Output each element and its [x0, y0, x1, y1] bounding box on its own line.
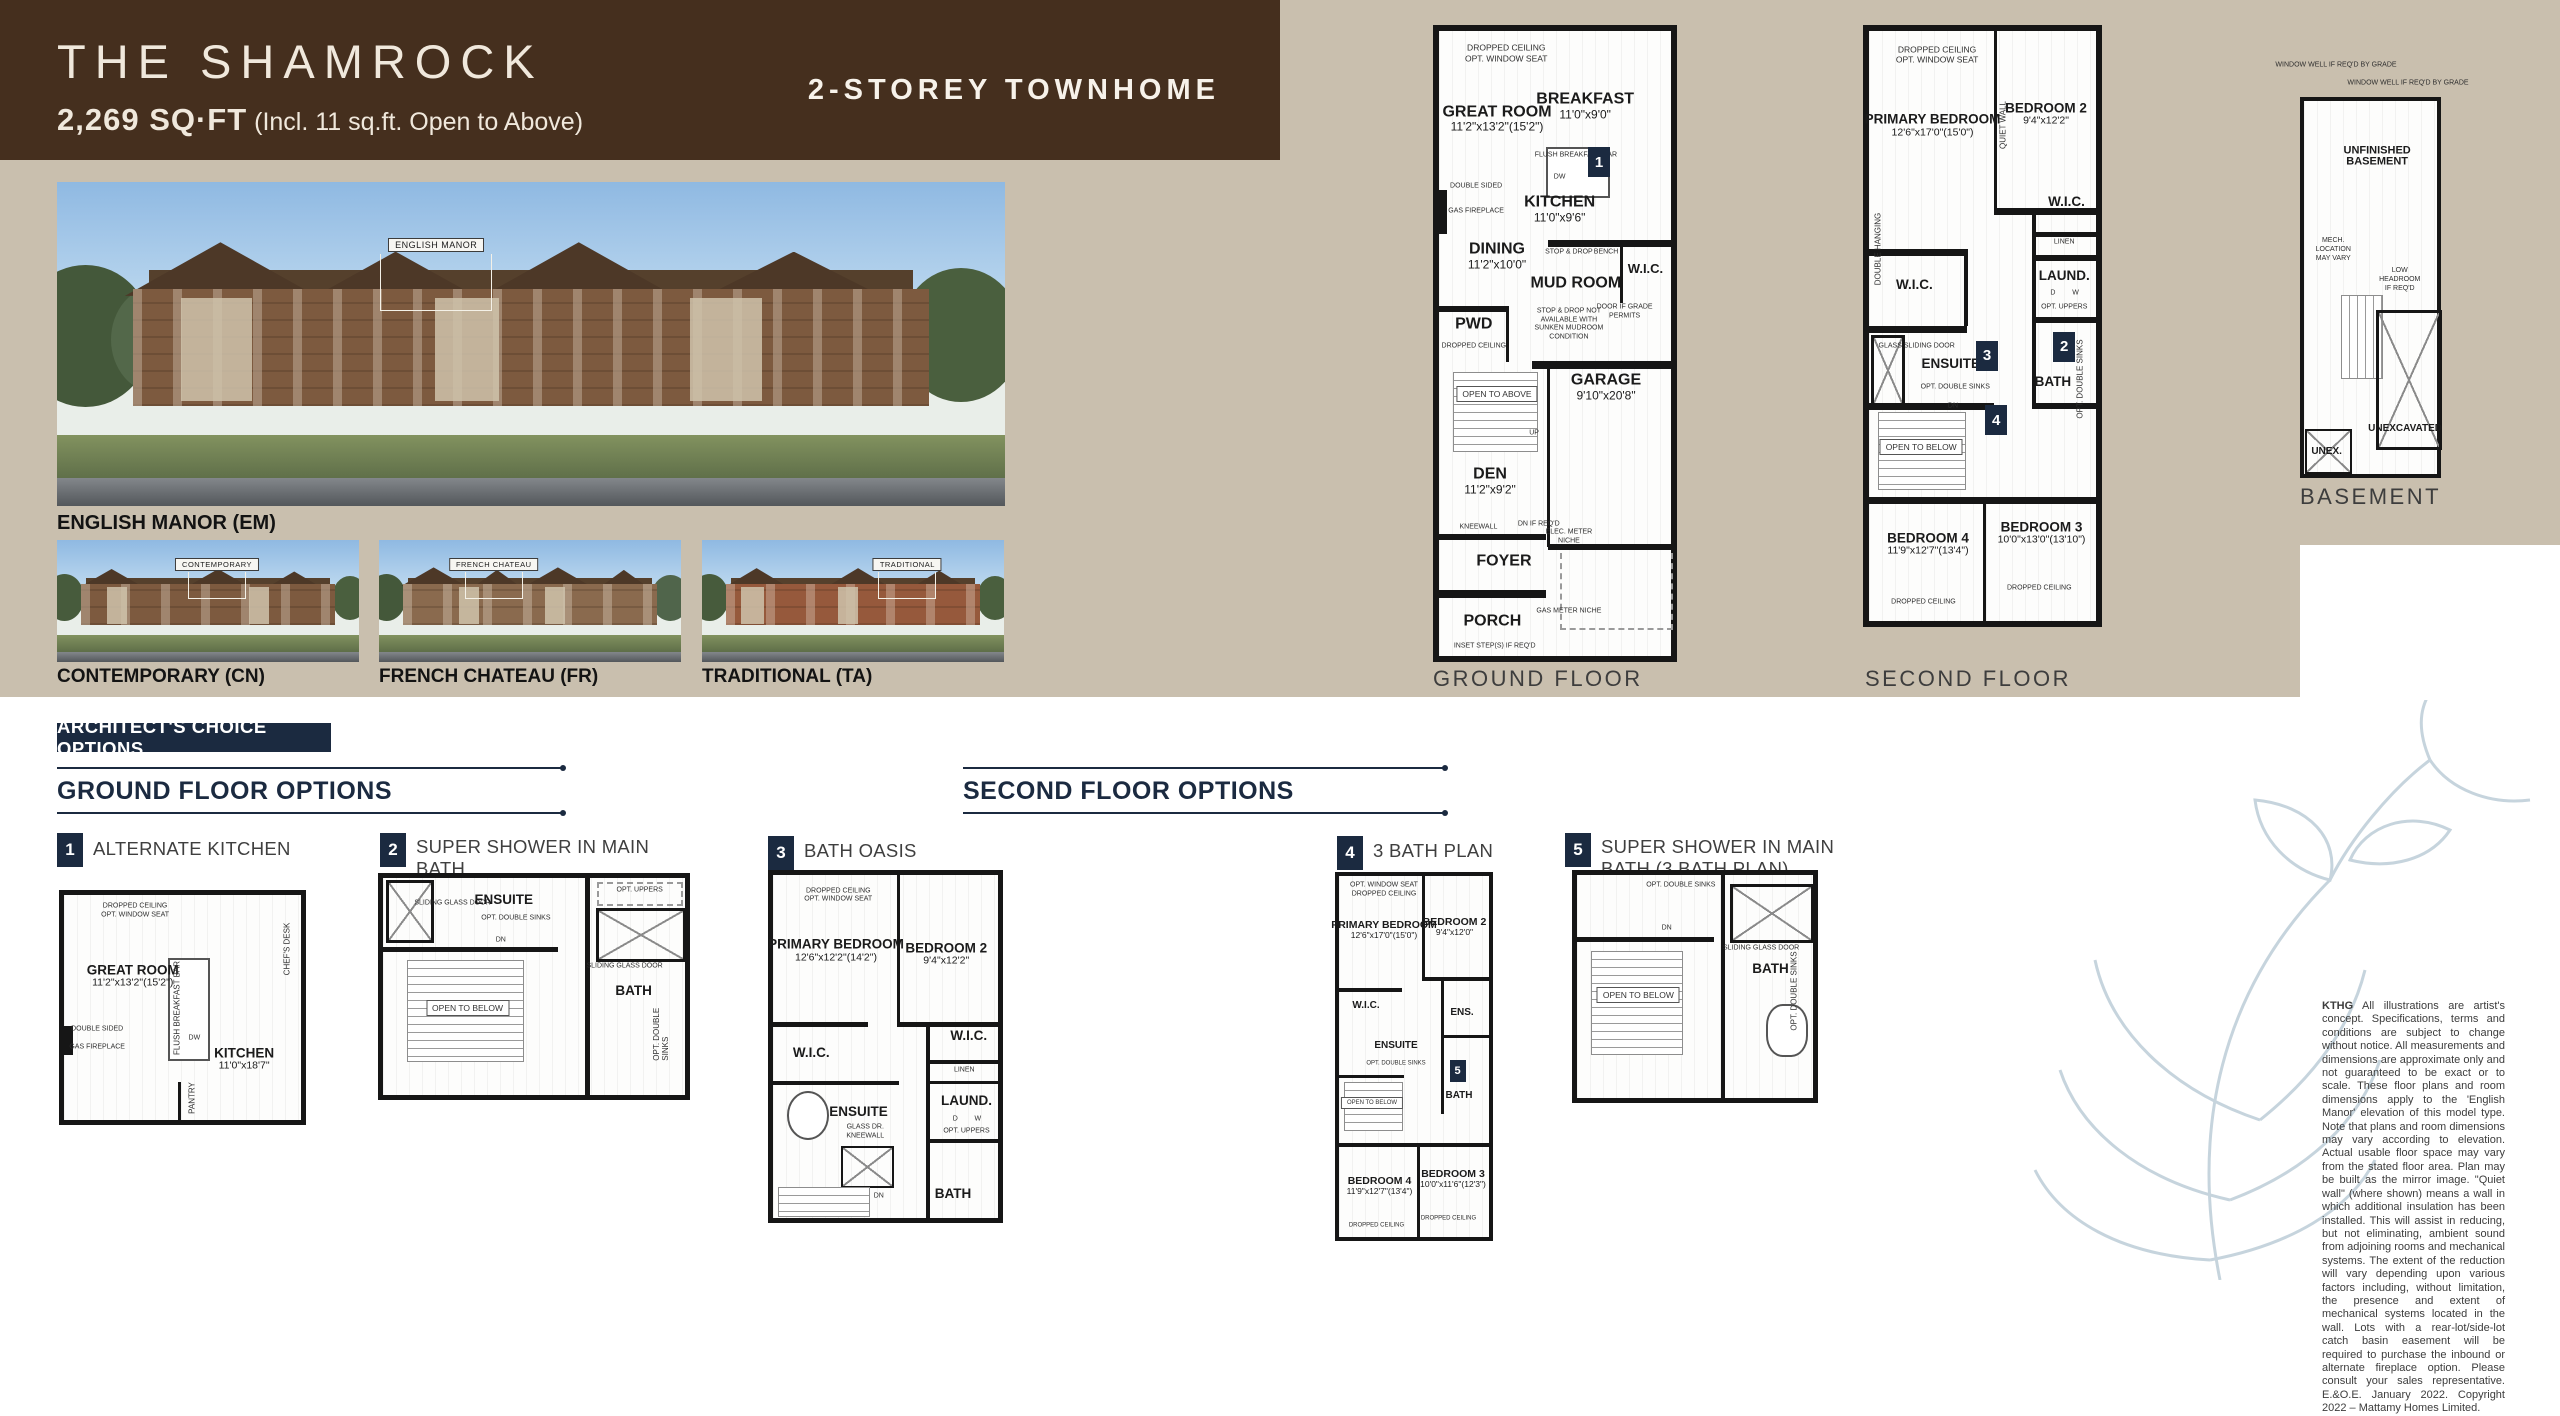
lawn	[57, 435, 1005, 484]
plan-note: GLASS SLIDING DOOR	[1879, 342, 1955, 351]
room-label: BATH	[1752, 962, 1789, 976]
plan-note: LINEN	[2054, 239, 2075, 248]
elevation-photo-contemporary: CONTEMPORARY	[57, 540, 359, 662]
option-marker-5: 5	[1450, 1060, 1466, 1082]
room-label: BATH	[1445, 1091, 1472, 1102]
second-floor-plan: DROPPED CEILINGOPT. WINDOW SEAT PRIMARY …	[1863, 25, 2102, 627]
option-3-plan: DROPPED CEILINGOPT. WINDOW SEAT PRIMARY …	[768, 870, 1003, 1223]
facade	[403, 584, 657, 625]
stone-bay	[249, 587, 269, 623]
room-label: ENS.	[1450, 1008, 1473, 1019]
shower	[596, 908, 687, 962]
ground-floor-caption: GROUND FLOOR	[1433, 666, 1643, 692]
plan-note: LINEN	[954, 1066, 975, 1075]
room-label: BEDROOM 411'9"x12'7"(13'4")	[1887, 532, 1969, 557]
basement-caption: BASEMENT	[2300, 484, 2441, 510]
plan-note: CHEF'S DESK	[282, 923, 291, 976]
elevation-callout: ENGLISH MANOR	[388, 238, 484, 252]
room-label: BREAKFAST11'0"x9'0"	[1536, 91, 1634, 120]
plan-note: DROPPED CEILING	[1349, 1222, 1404, 1230]
room-label: BEDROOM 29'4"x12'2"	[2005, 101, 2087, 126]
room-label: BEDROOM 310'0"x13'0"(13'10")	[1998, 520, 2086, 545]
stone-bay	[435, 298, 499, 401]
plan-note: GAS FIREPLACE	[69, 1044, 125, 1053]
rule	[963, 767, 1445, 769]
room-label: BATH	[615, 984, 652, 998]
plan-note: OPT. DOUBLE SINKS	[1790, 951, 1799, 1030]
plan-note: LOW HEADROOM IF REQ'D	[2378, 267, 2422, 293]
plan-note: DROPPED CEILING	[1891, 599, 1956, 608]
wall-segment	[1577, 937, 1714, 941]
plan-note: FLUSH BREAKFAST BAR	[172, 960, 181, 1054]
wall-segment	[926, 1022, 930, 1218]
room-label: KITCHEN11'0"x9'6"	[1524, 194, 1595, 223]
room-label: UNEXCAVATED	[2368, 424, 2442, 435]
plan-note: D	[2050, 289, 2055, 298]
plan-note: STOP & DROP	[1545, 249, 1593, 258]
tree	[332, 576, 359, 620]
plan-note: DN	[1948, 403, 1958, 412]
wall-segment	[1506, 306, 1509, 362]
room-label: PORCH	[1463, 613, 1521, 630]
wall-segment	[926, 1139, 998, 1142]
basement-plan: UNFINISHED BASEMENT MECH. LOCATION MAY V…	[2300, 97, 2441, 478]
room-label: PRIMARY BEDROOM12'6"x17'0"(15'0")	[1865, 113, 2001, 138]
elevation-callout: CONTEMPORARY	[175, 558, 259, 571]
room-label: W.I.C.	[2048, 195, 2085, 209]
wall-segment	[773, 1022, 868, 1026]
option-1-plan: DROPPED CEILINGOPT. WINDOW SEAT GREAT RO…	[59, 890, 306, 1125]
wall-segment	[2032, 255, 2096, 261]
sqft-line: 2,269 SQ·FT (Incl. 11 sq.ft. Open to Abo…	[57, 102, 583, 138]
wall-segment	[773, 1081, 899, 1085]
room-label: MUD ROOM	[1531, 276, 1622, 293]
option-marker-2: 2	[2053, 332, 2075, 362]
elevation-callout: FRENCH CHATEAU	[449, 558, 539, 571]
tree	[379, 574, 406, 621]
plan-note: OPT. DOUBLE SINKS	[2076, 340, 2085, 419]
room-label: UNFINISHED BASEMENT	[2332, 145, 2422, 168]
header-band: THE SHAMROCK 2,269 SQ·FT (Incl. 11 sq.ft…	[0, 0, 1280, 160]
second-floor-options-header: SECOND FLOOR OPTIONS	[963, 777, 1294, 806]
wall-segment	[1439, 306, 1509, 312]
room-label: DINING11'2"x10'0"	[1468, 241, 1526, 270]
note-line: DROPPED CEILING	[1467, 42, 1545, 52]
open-to-above-label: OPEN TO ABOVE	[1456, 386, 1537, 402]
wall-segment	[383, 947, 558, 951]
page-title: THE SHAMROCK	[57, 34, 544, 89]
plan-note: SLIDING GLASS DOOR	[586, 963, 662, 972]
wall-segment	[2032, 403, 2096, 409]
plan-note: OPT. UPPERS	[617, 887, 663, 896]
stone-bay	[107, 587, 127, 623]
plan-note: WINDOW WELL IF REQ'D BY GRADE	[2275, 62, 2396, 71]
room-label: W.I.C.	[1352, 1001, 1379, 1012]
room-label: BEDROOM 29'4"x12'2"	[905, 941, 987, 966]
room-label: BATH	[935, 1187, 972, 1201]
stone-bay	[741, 587, 764, 623]
plan-note: D	[953, 1116, 958, 1125]
plan-note: DROPPED CEILING	[2007, 584, 2072, 593]
room-label: W.I.C.	[793, 1046, 830, 1060]
tree	[57, 574, 84, 621]
rule	[963, 812, 1445, 814]
option-marker-4: 4	[1985, 405, 2007, 435]
fireplace	[1439, 190, 1447, 234]
shower	[1730, 884, 1814, 944]
sqft-note: (Incl. 11 sq.ft. Open to Above)	[247, 108, 583, 136]
room-label: W.I.C.	[1628, 262, 1663, 276]
option-2-number: 2	[380, 833, 406, 867]
room-label: ENSUITE	[829, 1105, 888, 1119]
plan-note: W	[974, 1116, 981, 1125]
option-2-plan: SLIDING GLASS DOOR ENSUITE OPT. DOUBLE S…	[378, 873, 690, 1100]
wall-segment	[926, 1081, 998, 1084]
plan-note: KNEEWALL	[1460, 524, 1498, 533]
elevation-label-cn: CONTEMPORARY (CN)	[57, 666, 265, 688]
wall-segment	[1721, 875, 1725, 1098]
stairs	[1453, 372, 1539, 452]
wall-segment	[1964, 249, 1967, 326]
callout-bracket	[188, 572, 246, 599]
building	[133, 289, 929, 406]
wall-segment	[1983, 497, 1986, 621]
room-label: PRIMARY BEDROOM12'6"x17'0"(15'0")	[1331, 920, 1437, 940]
wall-segment	[1439, 534, 1546, 540]
plan-note: DOUBLE SIDED	[71, 1026, 123, 1035]
plan-note: W	[2072, 289, 2079, 298]
callout-bracket	[380, 254, 492, 311]
room-label: LAUND.	[941, 1094, 992, 1108]
room-label: W.I.C.	[950, 1029, 987, 1043]
wall-segment	[1417, 1143, 1420, 1237]
home-type-label: 2-STOREY TOWNHOME	[620, 74, 1220, 107]
ground-floor-options-header: GROUND FLOOR OPTIONS	[57, 777, 392, 806]
plan-note: GAS FIREPLACE	[1448, 208, 1504, 217]
architects-choice-banner: ARCHITECT'S CHOICE OPTIONS	[57, 723, 331, 752]
option-4-plan: OPT. WINDOW SEATDROPPED CEILING PRIMARY …	[1335, 872, 1493, 1241]
option-3-label: BATH OASIS	[804, 840, 1024, 862]
rule	[57, 767, 563, 769]
plan-note: GAS METER NICHE	[1534, 608, 1604, 617]
wall-segment	[1620, 240, 1623, 303]
plan-note: PANTRY	[187, 1082, 196, 1114]
option-1-label: ALTERNATE KITCHEN	[93, 838, 353, 860]
elevation-label-em: ENGLISH MANOR (EM)	[57, 512, 276, 535]
room-label: W.I.C.	[1896, 278, 1933, 292]
plan-note: DROPPED CEILINGOPT. WINDOW SEAT	[1896, 44, 1978, 65]
plan-note: DROPPED CEILINGOPT. WINDOW SEAT	[1465, 42, 1547, 63]
wall-segment	[178, 1082, 181, 1120]
option-4-number: 4	[1337, 836, 1363, 870]
plan-note: DROPPED CEILING	[1421, 1215, 1476, 1223]
plan-note: DROPPED CEILINGOPT. WINDOW SEAT	[804, 887, 872, 905]
room-label: UNEX.	[2311, 446, 2342, 457]
plan-note: OPT. WINDOW SEATDROPPED CEILING	[1350, 882, 1418, 900]
plan-note: OPT. UPPERS	[943, 1128, 989, 1137]
callout-bracket	[878, 572, 936, 599]
room-label: ENSUITE	[1374, 1040, 1417, 1051]
driveway	[1560, 553, 1673, 630]
option-3-number: 3	[768, 836, 794, 870]
plan-note: DOUBLE SIDED	[1450, 183, 1502, 192]
stone-bay	[838, 587, 858, 623]
wall-segment	[1532, 361, 1671, 369]
background-notch	[2300, 545, 2560, 697]
option-5-number: 5	[1565, 833, 1591, 867]
open-to-below-label: OPEN TO BELOW	[1880, 439, 1963, 455]
elevation-label-ta: TRADITIONAL (TA)	[702, 666, 872, 688]
plan-note: MECH. LOCATION MAY VARY	[2311, 237, 2355, 263]
plan-note: DOOR IF GRADE PERMITS	[1590, 304, 1660, 322]
room-label: BEDROOM 411'9"x12'7"(13'4")	[1347, 1176, 1413, 1196]
plan-note: OPT. DOUBLE SINKS	[652, 991, 670, 1060]
sqft-value: 2,269 SQ·FT	[57, 102, 247, 137]
legal-disclaimer: KTHG All illustrations are artist's conc…	[2322, 1000, 2505, 1416]
wall-segment	[1439, 590, 1546, 598]
wall-segment	[2032, 317, 2096, 323]
plan-note: DW	[189, 1035, 201, 1044]
stone-bay	[545, 587, 565, 623]
plan-note: WINDOW WELL IF REQ'D BY GRADE	[2347, 80, 2468, 89]
room-label: GARAGE9'10"x20'8"	[1571, 373, 1641, 402]
elevation-photo-traditional: TRADITIONAL	[702, 540, 1004, 662]
open-to-below-label: OPEN TO BELOW	[426, 1000, 509, 1016]
plan-note: ELEC. METER NICHE	[1534, 529, 1604, 547]
plan-note: DW	[1554, 174, 1566, 183]
room-label: ENSUITE	[475, 893, 534, 907]
elevation-photo-english-manor: ENGLISH MANOR	[57, 182, 1005, 506]
room-label: PWD	[1455, 316, 1492, 333]
callout-bracket	[465, 572, 523, 599]
room-label: BEDROOM 310'0"x11'6"(12'3")	[1420, 1169, 1486, 1189]
plan-note: BENCH	[1594, 249, 1619, 258]
toilet	[1766, 1004, 1808, 1057]
plan-note: OPT. DOUBLE SINKS	[1646, 882, 1715, 891]
plan-note: DROPPED CEILING	[1442, 342, 1507, 351]
note-line: OPT. WINDOW SEAT	[1465, 53, 1547, 63]
wall-segment	[1869, 249, 1964, 256]
option-marker-3: 3	[1976, 341, 1998, 371]
wall-segment	[1339, 1075, 1404, 1079]
tree	[977, 576, 1004, 620]
wall-segment	[1548, 240, 1671, 246]
wall-segment	[1547, 362, 1550, 546]
plan-note: OPT. UPPERS	[2041, 304, 2087, 313]
room-label: ENSUITE	[1921, 357, 1980, 371]
road	[379, 652, 681, 662]
plan-note: INSET STEP(S) IF REQ'D	[1454, 642, 1536, 651]
open-to-below-label: OPEN TO BELOW	[1341, 1097, 1403, 1109]
wall-segment	[1422, 977, 1490, 981]
plan-note: DN	[496, 937, 506, 946]
wall-segment	[585, 878, 590, 1095]
plan-note: OPT. DOUBLE SINKS	[1366, 1060, 1425, 1068]
option-1-number: 1	[57, 833, 83, 867]
quiet-wall-note: QUIET WALL	[1998, 101, 2007, 149]
road	[57, 652, 359, 662]
plan-note: DN	[874, 1193, 884, 1202]
shower	[841, 1146, 895, 1188]
wall-segment	[1339, 988, 1402, 992]
building	[726, 584, 980, 625]
plan-note: SLIDING GLASS DOOR	[1723, 944, 1799, 953]
stone-bay	[690, 298, 762, 401]
tree	[702, 574, 729, 621]
room-label: LAUND.	[2039, 269, 2090, 283]
shower	[386, 880, 434, 942]
ground-floor-plan: DROPPED CEILINGOPT. WINDOW SEAT GREAT RO…	[1433, 25, 1677, 662]
option-4-label: 3 BATH PLAN	[1373, 840, 1593, 862]
wall-segment	[1869, 326, 1967, 333]
option-marker-1: 1	[1588, 147, 1610, 177]
room-label: BATH	[2035, 375, 2072, 389]
road	[57, 478, 1005, 506]
facade	[133, 289, 929, 406]
wall-segment	[1339, 1143, 1489, 1147]
room-label: GREAT ROOM11'2"x13'2"(15'2")	[87, 963, 179, 988]
rule	[57, 812, 563, 814]
stone-bay	[181, 298, 253, 401]
wall-segment	[897, 1022, 998, 1026]
bathtub	[787, 1091, 829, 1140]
stairs	[778, 1187, 870, 1216]
open-to-below-label: OPEN TO BELOW	[1597, 987, 1680, 1003]
plan-note: DN	[1662, 924, 1672, 933]
elevation-photo-french-chateau: FRENCH CHATEAU	[379, 540, 681, 662]
plan-note: DROPPED CEILINGOPT. WINDOW SEAT	[101, 902, 169, 920]
room-label: BEDROOM 29'4"x12'0"	[1423, 917, 1487, 937]
option-5-plan: OPT. DOUBLE SINKS DN OPEN TO BELOW SLIDI…	[1572, 870, 1818, 1103]
road	[702, 652, 1004, 662]
disclaimer-lead: KTHG	[2322, 1000, 2353, 1012]
plan-note: UP	[1529, 430, 1539, 439]
double-hanging-note: DOUBLE HANGING	[1874, 213, 1883, 285]
wall-segment	[1441, 977, 1444, 1114]
room-label: FOYER	[1476, 554, 1531, 571]
wall-segment	[1441, 1035, 1489, 1039]
elevation-callout: TRADITIONAL	[873, 558, 942, 571]
room-label: GREAT ROOM11'2"x13'2"(15'2")	[1442, 104, 1551, 133]
plan-note: OPT. DOUBLE SINKS	[1921, 384, 1990, 393]
elevation-label-fr: FRENCH CHATEAU (FR)	[379, 666, 598, 688]
disclaimer-body: All illustrations are artist's concept. …	[2322, 1000, 2505, 1414]
wall-segment	[2032, 232, 2096, 238]
wall-segment	[926, 1060, 998, 1063]
room-label: PRIMARY BEDROOM12'6"x12'2"(14'2")	[768, 938, 904, 963]
building	[403, 584, 657, 625]
room-label: KITCHEN11'0"x18'7"	[214, 1047, 274, 1072]
room-label: DEN11'2"x9'2"	[1464, 466, 1516, 495]
plan-note: OPT. DOUBLE SINKS	[481, 915, 550, 924]
plan-note: GLASS DR. KNEEWALL	[839, 1124, 891, 1142]
second-floor-caption: SECOND FLOOR	[1865, 666, 2071, 692]
